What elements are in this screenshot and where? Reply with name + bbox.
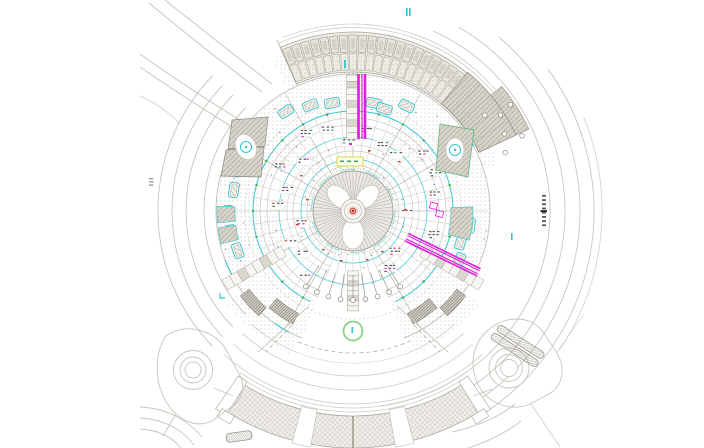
text-speck (275, 230, 277, 231)
road-line (140, 54, 243, 122)
text-speck (381, 145, 383, 146)
text-speck (402, 226, 404, 227)
text-speck (371, 109, 373, 110)
green-node-dot (281, 281, 283, 283)
text-speck (418, 150, 420, 151)
green-node-dot (281, 139, 283, 141)
text-speck (304, 130, 306, 131)
text-speck (323, 130, 325, 131)
text-speck (398, 248, 400, 249)
text-speck (422, 159, 424, 160)
text-speck (313, 180, 315, 181)
green-node-dot (423, 139, 425, 141)
green-node-dot (302, 296, 304, 298)
road-line (559, 118, 602, 351)
red-speck (381, 251, 384, 252)
text-speck (294, 240, 296, 241)
text-speck (402, 210, 404, 211)
text-speck (423, 150, 425, 151)
dome-petal (342, 219, 364, 249)
cyan-tick (352, 327, 354, 333)
cyan-tick (406, 8, 408, 16)
text-speck (296, 146, 298, 147)
text-speck (385, 145, 387, 146)
loop-circle (185, 362, 201, 378)
road-line (140, 67, 238, 131)
green-speck (354, 161, 358, 163)
grid-bubble (502, 132, 507, 137)
text-speck (279, 166, 281, 167)
walkway-cell (347, 306, 359, 311)
site-plan-svg (0, 0, 704, 448)
kiosk-box (228, 182, 240, 198)
text-speck (439, 172, 441, 173)
micro-text-speck (542, 220, 546, 222)
text-speck (401, 199, 403, 200)
text-speck (275, 163, 277, 164)
tree-marker (303, 284, 308, 289)
text-speck (390, 152, 392, 153)
red-speck (296, 224, 299, 225)
text-speck (298, 254, 300, 255)
text-speck (370, 128, 372, 129)
micro-text-speck (542, 216, 546, 218)
text-speck (385, 265, 387, 266)
road-line (140, 96, 180, 124)
text-speck (348, 139, 350, 140)
green-speck (347, 161, 351, 163)
red-speck (306, 199, 309, 200)
text-speck (303, 251, 305, 252)
text-speck (305, 196, 307, 197)
green-node-dot (378, 113, 380, 115)
text-speck (436, 234, 438, 235)
hatched-ramp-bar (226, 430, 253, 443)
micro-text-speck (149, 181, 153, 182)
road-line (158, 76, 213, 347)
green-node-dot (402, 296, 404, 298)
text-speck (390, 254, 392, 255)
green-node-dot (448, 236, 450, 238)
micro-text-speck (542, 199, 546, 201)
text-speck (282, 190, 284, 191)
text-speck (386, 142, 388, 143)
text-speck (436, 115, 438, 116)
text-speck (298, 162, 300, 163)
text-speck (415, 112, 417, 113)
red-speck (368, 150, 371, 151)
text-speck (225, 249, 227, 250)
text-speck (281, 171, 283, 172)
text-speck (344, 139, 346, 140)
cad-viewport (0, 0, 704, 448)
cyan-tick (344, 60, 346, 68)
cyan-tick (511, 233, 513, 240)
tree-marker (398, 284, 403, 289)
text-speck (282, 163, 284, 164)
red-speck (300, 175, 303, 176)
text-speck (306, 251, 308, 252)
grid-bubble (503, 150, 508, 155)
text-speck (310, 130, 312, 131)
red-speck (404, 209, 407, 210)
green-node-dot (255, 184, 257, 186)
text-speck (299, 159, 301, 160)
text-speck (249, 245, 251, 246)
green-speck (340, 161, 344, 163)
text-speck (433, 184, 435, 185)
micro-text-speck (542, 203, 546, 205)
text-speck (430, 237, 432, 238)
red-speck (340, 260, 343, 261)
text-speck (283, 166, 285, 167)
info-marker-dot (454, 149, 456, 151)
ramp-road (140, 429, 181, 448)
micro-text-speck (149, 184, 153, 185)
text-speck (390, 265, 392, 266)
text-speck (290, 240, 292, 241)
text-speck (327, 127, 329, 128)
text-speck (430, 194, 432, 195)
text-speck (433, 194, 435, 195)
text-speck (272, 206, 274, 207)
grid-bubble (483, 113, 488, 118)
text-speck (430, 191, 432, 192)
micro-text-speck (542, 208, 546, 210)
text-speck (432, 234, 434, 235)
text-speck (389, 248, 391, 249)
text-speck (318, 162, 320, 163)
text-speck (367, 128, 369, 129)
text-speck (307, 159, 309, 160)
text-speck (286, 190, 288, 191)
text-speck (279, 163, 281, 164)
text-speck (400, 152, 402, 153)
text-speck (301, 136, 303, 137)
text-speck (343, 142, 345, 143)
tree-marker (351, 298, 356, 303)
text-speck (275, 166, 277, 167)
text-speck (301, 228, 303, 229)
ramp-road (473, 319, 562, 407)
red-speck (366, 259, 369, 260)
text-speck (393, 248, 395, 249)
text-speck (277, 203, 279, 204)
text-speck (285, 187, 287, 188)
text-speck (304, 220, 306, 221)
text-speck (279, 132, 281, 133)
text-speck (423, 153, 425, 154)
text-speck (428, 234, 430, 235)
micro-text-speck (149, 178, 153, 179)
text-speck (435, 172, 437, 173)
cyan-tick (409, 8, 411, 16)
grid-bubble (498, 113, 503, 118)
text-speck (281, 203, 283, 204)
info-marker-dot (245, 146, 247, 148)
green-node-dot (402, 123, 404, 125)
text-speck (433, 191, 435, 192)
text-speck (298, 251, 300, 252)
road-line (165, 0, 272, 84)
text-speck (378, 145, 380, 146)
text-speck (363, 267, 365, 268)
micro-text-speck (541, 210, 548, 212)
text-speck (384, 271, 386, 272)
text-speck (331, 127, 333, 128)
text-speck (430, 172, 432, 173)
text-speck (409, 148, 411, 149)
text-speck (243, 222, 245, 223)
text-speck (234, 178, 236, 179)
green-node-dot (448, 184, 450, 186)
red-speck (398, 161, 401, 162)
text-speck (270, 174, 272, 175)
text-speck (393, 265, 395, 266)
text-speck (338, 254, 340, 255)
magenta-speck (349, 143, 352, 145)
text-speck (410, 210, 412, 211)
text-speck (283, 187, 285, 188)
green-node-dot (252, 210, 254, 212)
text-speck (437, 191, 439, 192)
text-speck (431, 175, 433, 176)
text-speck (285, 240, 287, 241)
text-speck (274, 108, 276, 109)
text-speck (327, 115, 329, 116)
grid-bubble (508, 102, 513, 107)
tree-marker (387, 290, 392, 295)
text-speck (394, 152, 396, 153)
tree-marker (338, 297, 343, 302)
text-speck (393, 268, 395, 269)
text-speck (296, 220, 298, 221)
text-speck (308, 275, 310, 276)
survey-center-dot (352, 210, 355, 213)
text-speck (304, 133, 306, 134)
text-speck (302, 223, 304, 224)
text-speck (398, 251, 400, 252)
text-speck (383, 177, 385, 178)
text-speck (391, 251, 393, 252)
text-speck (328, 150, 330, 151)
text-speck (304, 159, 306, 160)
text-speck (301, 130, 303, 131)
text-speck (300, 275, 302, 276)
loop-circle (501, 360, 518, 377)
text-speck (352, 139, 354, 140)
text-speck (281, 200, 283, 201)
micro-text-speck (542, 224, 546, 226)
text-speck (331, 130, 333, 131)
text-speck (432, 231, 434, 232)
red-speck (322, 249, 325, 250)
text-speck (301, 220, 303, 221)
tree-marker (314, 290, 319, 295)
tree-marker (326, 294, 331, 299)
text-speck (395, 251, 397, 252)
text-speck (305, 275, 307, 276)
cyan-mark (220, 293, 225, 298)
green-node-dot (265, 160, 267, 162)
text-speck (291, 187, 293, 188)
text-speck (483, 238, 485, 239)
text-speck (381, 142, 383, 143)
text-speck (385, 268, 387, 269)
text-speck (327, 130, 329, 131)
text-speck (308, 133, 310, 134)
text-speck (437, 231, 439, 232)
text-speck (423, 280, 425, 281)
ramp-road (531, 404, 560, 447)
tree-marker (375, 294, 380, 299)
text-speck (431, 169, 433, 170)
text-speck (272, 203, 274, 204)
text-speck (240, 260, 242, 261)
green-node-dot (302, 123, 304, 125)
text-speck (327, 253, 329, 254)
text-speck (426, 150, 428, 151)
text-speck (429, 231, 431, 232)
text-speck (486, 231, 488, 232)
micro-text-speck (542, 195, 546, 197)
road-line (149, 3, 262, 92)
text-speck (300, 133, 302, 134)
text-speck (301, 236, 303, 237)
text-speck (378, 142, 380, 143)
tree-marker (363, 297, 368, 302)
grid-bubble (520, 133, 525, 138)
text-speck (371, 255, 373, 256)
text-speck (277, 246, 279, 247)
text-speck (419, 153, 421, 154)
text-speck (382, 154, 384, 155)
green-node-dot (255, 236, 257, 238)
text-speck (322, 127, 324, 128)
